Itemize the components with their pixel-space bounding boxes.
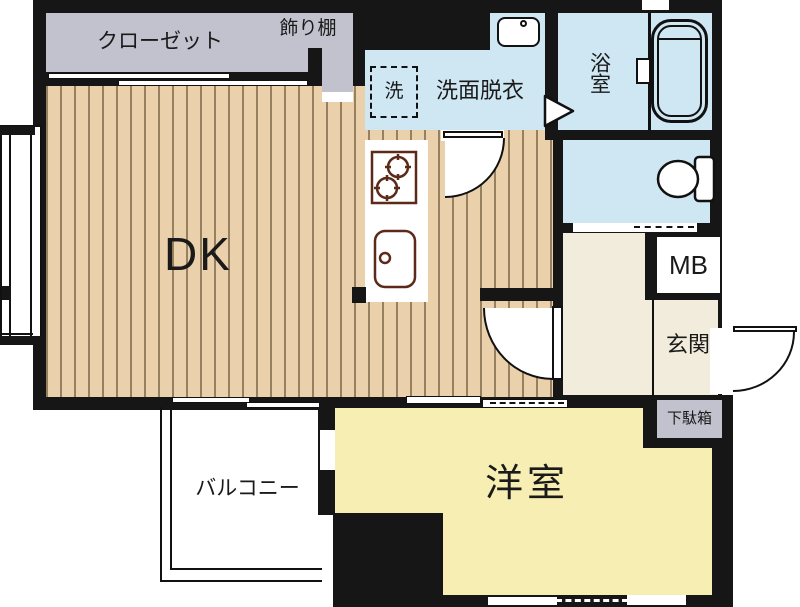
display-shelf-front xyxy=(322,92,353,102)
dk-window-frame-line xyxy=(9,127,11,343)
balcony-rail-inner-left xyxy=(170,410,172,570)
washroom-label: 洗面脱衣 xyxy=(422,77,538,105)
front-door-leaf xyxy=(733,326,797,332)
balcony-rail-outer-left xyxy=(160,407,162,582)
kitchen-sink-icon xyxy=(372,228,418,290)
dk-label: DK xyxy=(148,226,248,282)
washer-space: 洗 xyxy=(370,66,418,118)
dk-window-latch xyxy=(2,286,11,300)
western-bottom-window-dash xyxy=(556,599,628,602)
meter-box: MB xyxy=(657,237,720,293)
entrance-step-line xyxy=(652,300,654,395)
display-shelf-label: 飾り棚 xyxy=(270,16,346,42)
western-bottom-window xyxy=(627,595,686,605)
washbasin-icon xyxy=(497,17,540,47)
balcony-sliding-door xyxy=(246,402,320,408)
wall-window-cap-top xyxy=(0,126,35,135)
room-western xyxy=(443,513,712,595)
toilet-icon xyxy=(653,152,717,206)
bathtub-step xyxy=(636,58,651,84)
washer-space-label: 洗 xyxy=(372,68,416,116)
toilet-sliding-door-dash xyxy=(634,226,694,228)
floor-plan: 洗 MB xyxy=(0,0,800,607)
meter-box-label: MB xyxy=(657,237,720,293)
western-bottom-window xyxy=(488,597,557,605)
balcony-rail-outer-bottom xyxy=(160,580,322,582)
entrance-label: 玄関 xyxy=(657,330,719,360)
closet-sliding-door xyxy=(48,73,230,79)
balcony-rail-inner-bottom xyxy=(170,568,322,570)
bathtub-water-line xyxy=(659,38,700,40)
western-room-label: 洋室 xyxy=(445,460,609,510)
washbasin-faucet-dot xyxy=(520,20,527,27)
shoe-cabinet: 下駄箱 xyxy=(657,400,722,438)
washroom-door-leaf xyxy=(443,131,503,138)
bathroom-wall-notch xyxy=(642,0,669,10)
bathroom-door-icon xyxy=(542,94,576,128)
dk-window-frame-line xyxy=(30,127,32,343)
wall-kitchen-stub xyxy=(352,287,366,303)
closet-sliding-door xyxy=(118,80,308,86)
toilet-sliding-door xyxy=(573,223,631,232)
western-sliding-door-dash xyxy=(490,402,564,404)
closet-label: クローゼット xyxy=(60,28,260,56)
front-door-arc xyxy=(733,332,795,392)
wall-hall-stub xyxy=(480,288,557,301)
dk-window-sill-line xyxy=(0,333,33,335)
bathroom-label: 浴室 xyxy=(584,40,614,106)
shoe-cabinet-label: 下駄箱 xyxy=(657,400,722,438)
display-shelf-box xyxy=(322,48,353,92)
western-room-side-window xyxy=(320,430,335,470)
balcony-sliding-door xyxy=(172,397,250,403)
stove-icon xyxy=(370,150,418,205)
wall-window-cap-bottom xyxy=(0,336,46,345)
balcony-label: バルコニー xyxy=(175,476,320,502)
western-sliding-door xyxy=(406,396,481,404)
dk-window-bay xyxy=(0,125,42,345)
hall-door-leaf xyxy=(552,306,563,380)
room-western xyxy=(643,448,712,513)
